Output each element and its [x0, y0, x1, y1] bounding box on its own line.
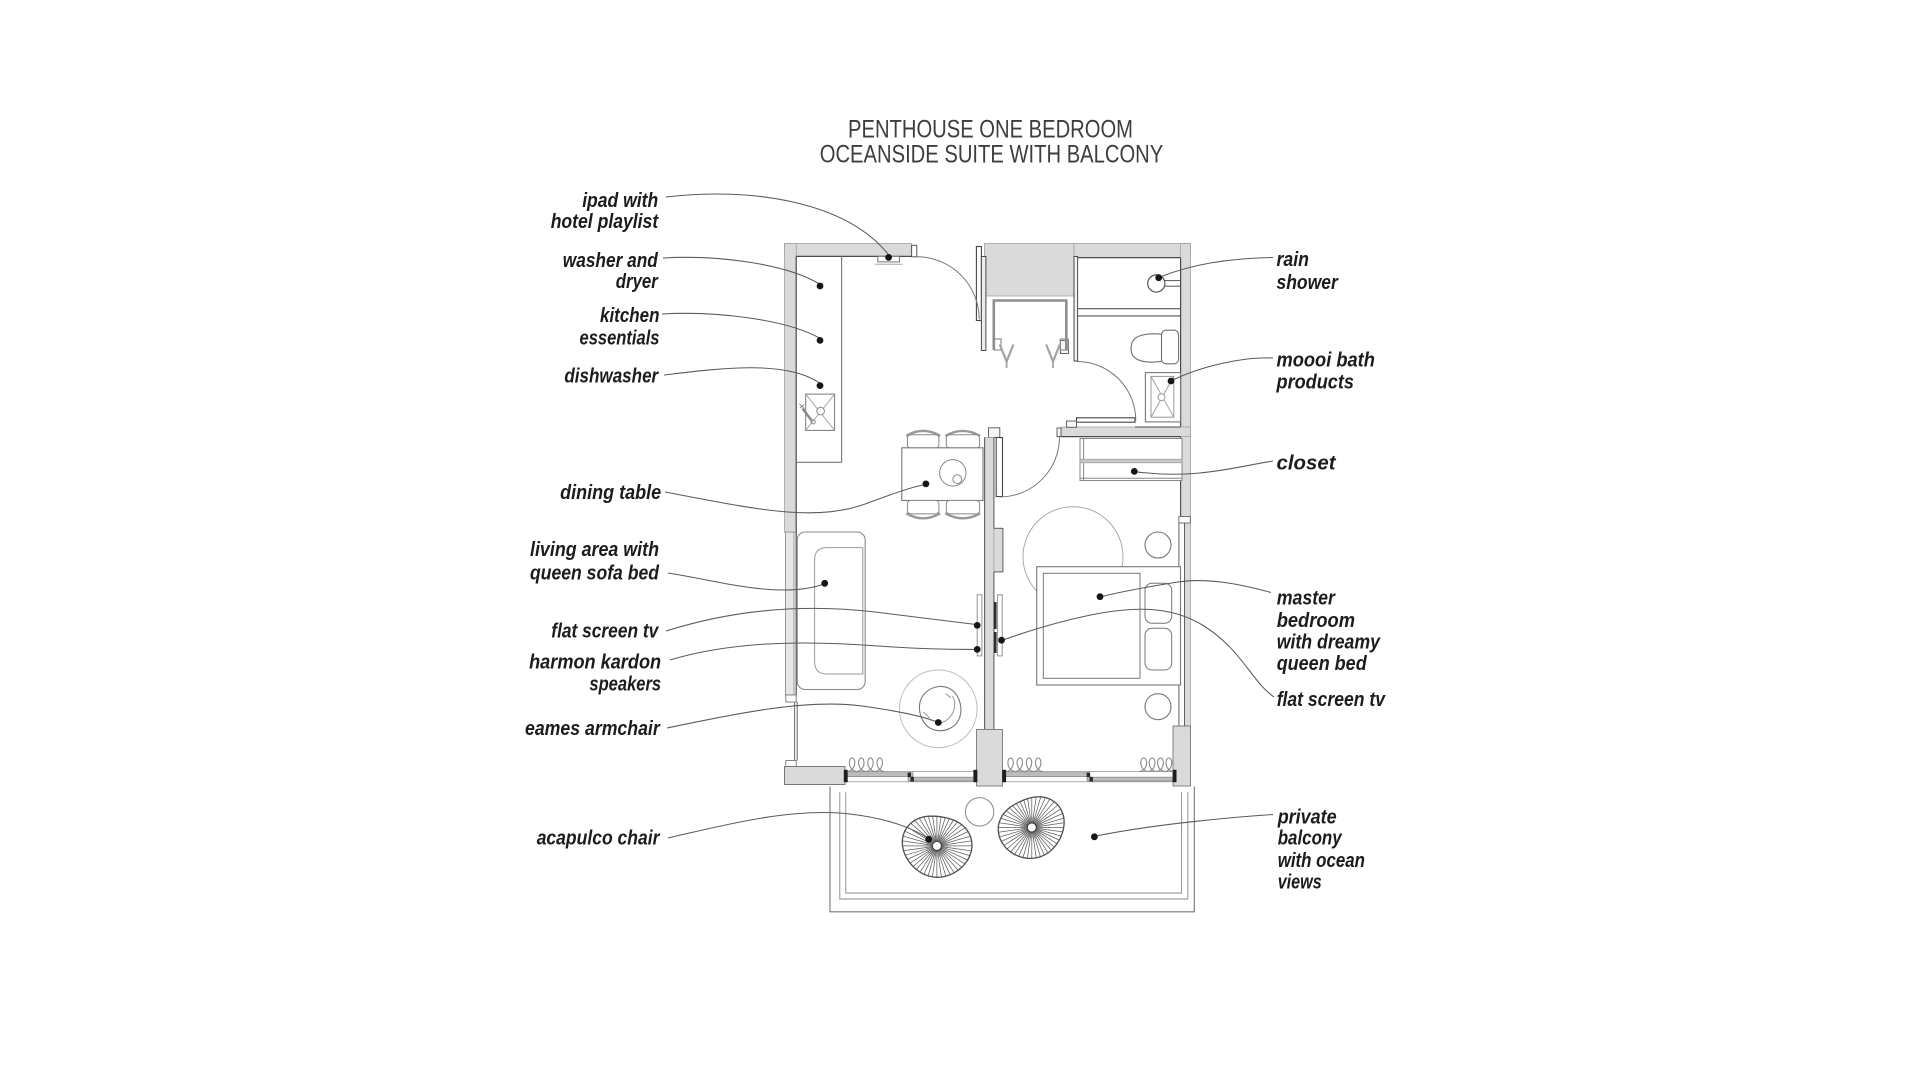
svg-text:shower: shower	[1277, 272, 1339, 294]
svg-text:balcony: balcony	[1278, 828, 1343, 850]
svg-text:washer and: washer and	[563, 250, 659, 272]
svg-text:kitchen: kitchen	[600, 305, 660, 327]
svg-text:bedroom: bedroom	[1277, 610, 1355, 632]
svg-text:harmon kardon: harmon kardon	[529, 651, 661, 673]
svg-text:eames armchair: eames armchair	[525, 718, 661, 740]
svg-text:dishwasher: dishwasher	[564, 366, 659, 388]
svg-text:dining table: dining table	[560, 482, 661, 504]
svg-text:master: master	[1277, 588, 1336, 610]
svg-text:dryer: dryer	[616, 271, 659, 293]
svg-text:ipad with: ipad with	[582, 190, 658, 212]
svg-text:closet: closet	[1277, 453, 1337, 475]
svg-text:OCEANSIDE SUITE WITH BALCONY: OCEANSIDE SUITE WITH BALCONY	[820, 141, 1164, 169]
svg-text:rain: rain	[1277, 249, 1309, 271]
svg-text:hotel playlist: hotel playlist	[551, 211, 660, 233]
svg-text:private: private	[1277, 807, 1337, 829]
svg-text:moooi bath: moooi bath	[1277, 350, 1375, 372]
svg-text:essentials: essentials	[580, 328, 660, 350]
svg-text:acapulco chair: acapulco chair	[537, 828, 661, 850]
svg-text:queen bed: queen bed	[1277, 653, 1368, 675]
svg-text:views: views	[1278, 872, 1322, 894]
svg-text:queen sofa bed: queen sofa bed	[530, 562, 660, 584]
svg-text:with dreamy: with dreamy	[1277, 632, 1381, 654]
svg-text:speakers: speakers	[589, 674, 661, 696]
svg-text:flat screen tv: flat screen tv	[1277, 689, 1387, 711]
svg-text:living area with: living area with	[530, 539, 659, 561]
svg-text:PENTHOUSE ONE BEDROOM: PENTHOUSE ONE BEDROOM	[848, 116, 1133, 144]
svg-text:with ocean: with ocean	[1278, 850, 1365, 872]
svg-text:products: products	[1276, 372, 1354, 394]
svg-text:flat screen tv: flat screen tv	[551, 621, 660, 643]
